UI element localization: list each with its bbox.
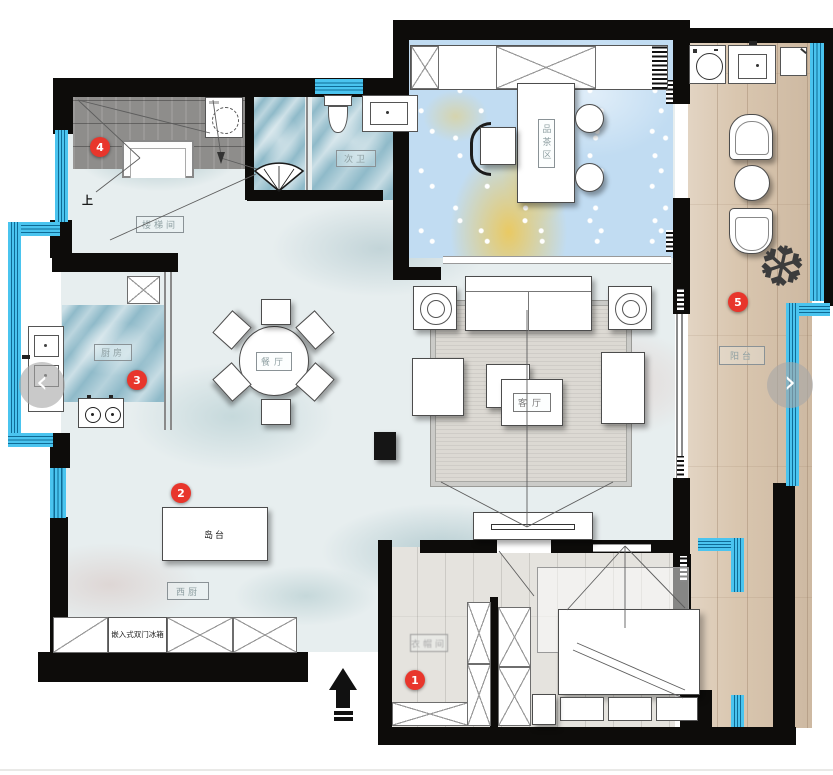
entry-arrow-bar: [334, 717, 353, 721]
sofa: [465, 276, 592, 331]
wall: [50, 433, 70, 468]
cabinet: [167, 617, 233, 653]
marker-5[interactable]: 5: [728, 292, 748, 312]
wall: [393, 267, 441, 280]
nightstand: [532, 694, 556, 725]
dining-chair: [261, 299, 291, 325]
page-divider: [0, 769, 833, 771]
wall: [380, 727, 796, 745]
curtain-track: [443, 256, 671, 264]
window: [55, 130, 68, 222]
wall: [773, 483, 795, 729]
wardrobe: [498, 607, 531, 667]
cabinet: [127, 276, 160, 304]
wall-hatch: [666, 230, 673, 252]
cabinet: [411, 46, 439, 89]
fridge-label: 嵌入式双门冰箱: [111, 631, 164, 639]
balcony-slider-door: [676, 314, 678, 478]
coffee-table: 客厅: [501, 379, 563, 426]
floor-plan: 品茶区 次卫 楼梯间 上 餐厅 客厅: [0, 0, 833, 775]
kitchen-slider-door: [170, 272, 172, 430]
balcony-chair: [729, 114, 773, 160]
tea-table: 品茶区: [517, 83, 575, 203]
wall: [824, 28, 833, 306]
wall: [673, 20, 690, 104]
armchair: [601, 352, 645, 424]
pillow: [656, 697, 698, 721]
window: [8, 433, 53, 447]
stairs-up-label: 上: [82, 192, 93, 208]
wardrobe: [392, 702, 468, 726]
wall: [247, 190, 383, 201]
wall: [52, 253, 178, 272]
window: [810, 43, 824, 301]
marker-2[interactable]: 2: [171, 483, 191, 503]
window: [731, 695, 744, 727]
pillow: [560, 697, 604, 721]
island-label: 岛台: [204, 528, 226, 541]
entry-arrow-icon: [329, 668, 357, 690]
prev-button[interactable]: ‹: [19, 362, 65, 408]
entry-arrow-bar: [334, 711, 353, 715]
speaker-side-table: [608, 286, 652, 330]
wall: [53, 78, 73, 134]
balcony-sink-icon: [728, 45, 776, 84]
dining-chair: [261, 399, 291, 425]
stove-icon: [78, 398, 124, 428]
tea-chair: [480, 127, 516, 165]
wardrobe: [467, 602, 491, 664]
wall: [378, 540, 392, 745]
toilet-tank-icon: [324, 95, 352, 106]
wall: [490, 597, 498, 729]
tea-area-label: 品茶区: [538, 119, 555, 168]
wardrobe: [498, 667, 531, 726]
shower-glass: [306, 97, 308, 190]
shower-room-floor: [253, 97, 305, 192]
side-stool: [374, 432, 396, 460]
stairwell-label: 楼梯间: [136, 216, 184, 233]
wardrobe: [467, 664, 491, 726]
island-counter: 岛台: [162, 507, 268, 561]
wall: [38, 652, 308, 682]
balcony-table: [734, 165, 770, 201]
wall: [245, 90, 254, 200]
bed: [558, 609, 700, 695]
balcony-label: 阳台: [719, 346, 765, 365]
stairs-door: [122, 140, 194, 178]
wall-hatch: [677, 456, 684, 480]
window: [8, 222, 21, 447]
balcony-washer-icon: [689, 45, 726, 84]
window: [50, 468, 66, 518]
kitchen-label: 厨房: [94, 344, 132, 361]
window: [731, 538, 744, 592]
wall: [393, 20, 690, 40]
kitchen-slider-door: [164, 272, 166, 430]
living-label: 客厅: [513, 393, 551, 412]
bath2-label: 次卫: [336, 150, 376, 167]
marker-4[interactable]: 4: [90, 137, 110, 157]
balcony-basin-icon: [780, 47, 807, 76]
tea-stool: [575, 104, 604, 133]
pillow: [608, 697, 652, 721]
wall: [688, 28, 828, 43]
bedroom-door-gap: [497, 540, 551, 553]
dining-label: 餐厅: [256, 352, 292, 371]
armchair: [412, 358, 464, 416]
wall: [393, 20, 409, 267]
bedroom-window-gap: [593, 544, 651, 552]
wall-hatch: [677, 288, 684, 312]
balcony-slider-door: [681, 314, 683, 478]
entry-arrow-stem: [336, 690, 350, 708]
bath-sink-icon: [362, 95, 418, 132]
closet-label: 衣帽间: [410, 634, 448, 652]
fridge-cabinet: 嵌入式双门冰箱: [108, 617, 167, 653]
tv-console: [473, 512, 593, 540]
wall-hatch: [652, 46, 667, 89]
marker-3[interactable]: 3: [127, 370, 147, 390]
window: [315, 79, 363, 94]
cabinet: [233, 617, 297, 653]
washing-machine-icon: [205, 97, 243, 138]
tea-stool: [575, 163, 604, 192]
marker-1[interactable]: 1: [405, 670, 425, 690]
speaker-side-table: [413, 286, 457, 330]
cabinet: [53, 617, 108, 653]
west-kitchen-label: 西厨: [167, 582, 209, 600]
next-button[interactable]: ›: [767, 362, 813, 408]
